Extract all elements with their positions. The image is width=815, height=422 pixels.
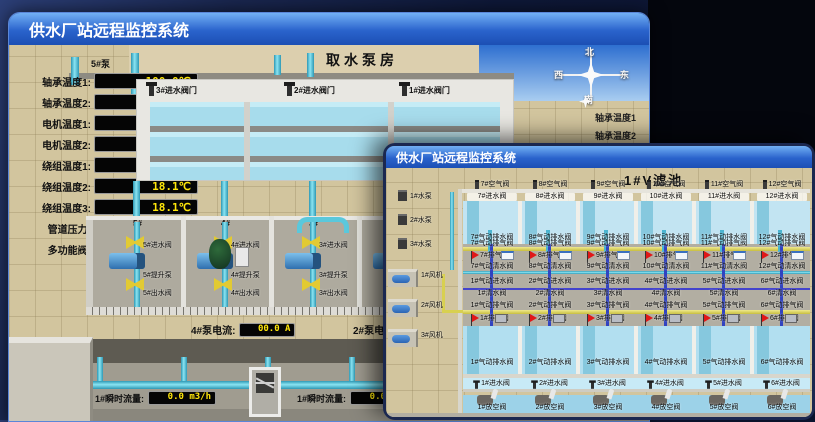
telemetry-label: 管道压力: xyxy=(29,221,94,236)
inlet-valve-label: 1#进水阀门 xyxy=(409,85,450,96)
inlet-gate-valve[interactable]: 2#进水阀门 xyxy=(287,85,335,96)
gate-valve-icon xyxy=(707,382,710,389)
outlet-valve-label: 3#出水阀 xyxy=(319,288,348,298)
empty-valve-label[interactable]: 6#放空阀 xyxy=(753,404,811,412)
blower-label: 2#风机 xyxy=(421,300,443,310)
clean-water-valve-label[interactable]: 6#清水阀 xyxy=(753,290,811,298)
pneumatic-inlet-valve-label[interactable]: 2#气动进水阀 xyxy=(521,278,579,286)
clean-water-valve-label[interactable]: 2#清水阀 xyxy=(521,290,579,298)
pool-pillar xyxy=(244,102,250,180)
clean-water-valve-label[interactable]: 5#清水阀 xyxy=(695,290,753,298)
equipment-box-icon xyxy=(553,314,565,323)
gate-valve-icon xyxy=(475,382,478,389)
titlebar[interactable]: 供水厂站远程监控系统 xyxy=(9,13,649,45)
inlet-valve[interactable]: 5#进水阀 xyxy=(695,380,753,391)
pneumatic-inlet-valve-label[interactable]: 4#气动进水阀 xyxy=(637,278,695,286)
compass-east: 东 xyxy=(620,68,629,81)
side-label-bearing-temp-1: 轴承温度1 xyxy=(595,111,636,124)
telemetry-row: 绕组温度3: 18.1℃ xyxy=(29,199,198,215)
compass-north: 北 xyxy=(585,45,594,58)
pneumatic-drain-valve-label[interactable]: 4#气动排水阀 xyxy=(637,359,695,367)
pneumatic-drain-valve-label[interactable]: 6#气动排水阀 xyxy=(753,359,811,367)
telemetry-label: 电机温度2: xyxy=(29,137,94,152)
flow-label: 1#瞬时流量: xyxy=(297,392,346,405)
panel-screen xyxy=(256,373,274,393)
pump-label: 3#水泵 xyxy=(410,239,432,249)
clean-water-valve-label[interactable]: 4#清水阀 xyxy=(637,290,695,298)
titlebar[interactable]: 供水厂站远程监控系统 xyxy=(386,146,812,168)
filter-cell-column-bottom: 2#气动进水阀 2#清水阀 2#气动排气阀 2#排气阀 2#气动排水阀 2#进水… xyxy=(521,168,579,417)
window-filter-pool: 供水厂站远程监控系统 1#V滤池 xyxy=(383,143,815,420)
pneumatic-vent-valve-label[interactable]: 2#气动排气阀 xyxy=(521,302,579,310)
compass-rose: 北 西 东 南 xyxy=(554,47,632,107)
equipment-box-icon xyxy=(727,314,739,323)
blower[interactable]: 1#风机 xyxy=(388,266,454,288)
blower-label: 1#风机 xyxy=(421,270,443,280)
panel-header: 5#泵 xyxy=(91,57,110,70)
outlet-valve-label: 5#出水阀 xyxy=(143,288,172,298)
filter-wall xyxy=(458,189,462,415)
control-panel-icon xyxy=(235,247,249,267)
pump-label: 2#水泵 xyxy=(410,215,432,225)
vent-flag-icon xyxy=(704,314,711,322)
equipment-box-icon xyxy=(785,314,797,323)
lift-pump-label: 5#提升泵 xyxy=(143,270,172,280)
blower[interactable]: 2#风机 xyxy=(388,296,454,318)
room-wall xyxy=(86,220,93,313)
telemetry-label: 绕组温度1: xyxy=(29,158,94,173)
pneumatic-inlet-valve-label[interactable]: 1#气动进水阀 xyxy=(463,278,521,286)
gate-valve-icon xyxy=(533,382,536,389)
background-panel xyxy=(648,0,815,160)
current-readout: 4#泵电流: 00.0 A xyxy=(191,322,295,337)
compass-star-icon xyxy=(578,62,604,88)
telemetry-label: 轴承温度1: xyxy=(29,74,94,89)
gate-valve-icon xyxy=(149,85,154,96)
led-readout: 00.0 A xyxy=(239,323,295,337)
telemetry-label: 电机温度1: xyxy=(29,116,94,131)
telemetry-label: 绕组温度2: xyxy=(29,179,94,194)
inlet-gate-valve[interactable]: 1#进水阀门 xyxy=(402,85,450,96)
clean-water-valve-label[interactable]: 1#清水阀 xyxy=(463,290,521,298)
inlet-valve-label: 3#进水阀 xyxy=(319,240,348,250)
filter-cell-column-bottom: 6#气动进水阀 6#清水阀 6#气动排气阀 6#排气阀 6#气动排水阀 6#进水… xyxy=(753,168,811,417)
compass-west: 西 xyxy=(554,68,563,81)
access-panel-icon xyxy=(249,367,281,417)
storage-tank-icon xyxy=(209,239,231,269)
equipment-box-icon xyxy=(495,314,507,323)
blower-motor-icon xyxy=(392,275,410,283)
flow-readout: 1#瞬时流量: 0.0 m3/h xyxy=(95,391,216,405)
pump-bay: 5# 5#进水阀 5#提升泵 5#出水阀 xyxy=(93,216,181,313)
window-title: 供水厂站远程监控系统 xyxy=(29,17,189,41)
inlet-valve-label: 5#进水阀 xyxy=(143,240,172,250)
pneumatic-vent-valve-label[interactable]: 4#气动排气阀 xyxy=(637,302,695,310)
telemetry-label: 多功能阀: xyxy=(29,242,94,257)
gate-valve-icon xyxy=(402,85,407,96)
vent-flag-icon xyxy=(530,314,537,322)
filter-cell-column-bottom: 3#气动进水阀 3#清水阀 3#气动排气阀 3#排气阀 3#气动排水阀 3#进水… xyxy=(579,168,637,417)
pump-icon xyxy=(398,238,407,249)
current-label: 4#泵电流: xyxy=(191,322,235,337)
clean-water-valve-label[interactable]: 3#清水阀 xyxy=(579,290,637,298)
inlet-valve[interactable]: 1#进水阀 xyxy=(463,380,521,391)
water-pump[interactable]: 2#水泵 xyxy=(398,214,432,225)
window-title: 供水厂站远程监控系统 xyxy=(396,149,516,166)
outlet-valve-label: 4#出水阀 xyxy=(231,288,260,298)
inlet-valve[interactable]: 2#进水阀 xyxy=(521,380,579,391)
outbuilding xyxy=(9,337,93,421)
pneumatic-drain-valve-label[interactable]: 2#气动排水阀 xyxy=(521,359,579,367)
inlet-gate-valve[interactable]: 3#进水阀门 xyxy=(149,85,197,96)
outlet-main-pipe xyxy=(61,381,391,389)
pump-label: 1#水泵 xyxy=(410,191,432,201)
inlet-valve[interactable]: 3#进水阀 xyxy=(579,380,637,391)
filter-cell-column-bottom: 1#气动进水阀 1#清水阀 1#气动排气阀 1#排气阀 1#气动排水阀 1#进水… xyxy=(463,168,521,417)
water-pump[interactable]: 1#水泵 xyxy=(398,190,432,201)
pneumatic-drain-valve-label[interactable]: 1#气动排水阀 xyxy=(463,359,521,367)
equipment-box-icon xyxy=(669,314,681,323)
vent-flag-icon xyxy=(472,314,479,322)
pipe-post xyxy=(307,53,314,77)
riser-pipe xyxy=(309,181,316,217)
pneumatic-drain-valve-label[interactable]: 5#气动排水阀 xyxy=(695,359,753,367)
pump-header-pipe xyxy=(450,192,454,270)
led-readout: 18.1℃ xyxy=(94,199,198,215)
empty-valve-label[interactable]: 5#放空阀 xyxy=(695,404,753,412)
empty-valve-label[interactable]: 2#放空阀 xyxy=(521,404,579,412)
gate-valve-icon xyxy=(591,382,594,389)
pool-channel xyxy=(150,102,500,126)
equipment-box-icon xyxy=(611,314,623,323)
inlet-valve[interactable]: 4#进水阀 xyxy=(637,380,695,391)
blower-motor-icon xyxy=(392,305,410,313)
led-readout: 0.0 m3/h xyxy=(148,391,216,405)
scene-title: 取水泵房 xyxy=(326,50,398,70)
filter-cell-column-bottom: 5#气动进水阀 5#清水阀 5#气动排气阀 5#排气阀 5#气动排水阀 5#进水… xyxy=(695,168,753,417)
inlet-valve-label: 2#进水阀门 xyxy=(294,85,335,96)
gate-valve-icon xyxy=(649,382,652,389)
filter-scene: 1#V滤池 xyxy=(386,168,812,417)
vent-flag-icon xyxy=(646,314,653,322)
lift-pump-label: 3#提升泵 xyxy=(319,270,348,280)
vent-flag-icon xyxy=(588,314,595,322)
lift-pump-icon[interactable] xyxy=(285,253,321,269)
pump-icon xyxy=(398,190,407,201)
vent-flag-icon xyxy=(762,314,769,322)
gate-valve-icon xyxy=(765,382,768,389)
pneumatic-drain-valve-label[interactable]: 3#气动排水阀 xyxy=(579,359,637,367)
riser-pipe xyxy=(133,181,140,217)
blower-motor-icon xyxy=(392,335,410,343)
riser-pipe xyxy=(221,181,228,217)
inlet-valve[interactable]: 6#进水阀 xyxy=(753,380,811,391)
filter-cell-column-bottom: 4#气动进水阀 4#清水阀 4#气动排气阀 4#排气阀 4#气动排水阀 4#进水… xyxy=(637,168,695,417)
water-pump[interactable]: 3#水泵 xyxy=(398,238,432,249)
pneumatic-inlet-valve-label[interactable]: 6#气动进水阀 xyxy=(753,278,811,286)
empty-valve-label[interactable]: 3#放空阀 xyxy=(579,404,637,412)
telemetry-label: 绕组温度3: xyxy=(29,200,94,215)
pump-house-wall xyxy=(129,45,479,75)
pneumatic-inlet-valve-label[interactable]: 3#气动进水阀 xyxy=(579,278,637,286)
gate-valve-icon xyxy=(287,85,292,96)
side-label-bearing-temp-2: 轴承温度2 xyxy=(595,129,636,142)
blower-label: 3#风机 xyxy=(421,330,443,340)
empty-valve-label[interactable]: 4#放空阀 xyxy=(637,404,695,412)
pneumatic-vent-valve-label[interactable]: 1#气动排气阀 xyxy=(463,302,521,310)
inlet-valve-label: 3#进水阀门 xyxy=(156,85,197,96)
pneumatic-vent-valve-label[interactable]: 3#气动排气阀 xyxy=(579,302,637,310)
blower[interactable]: 3#风机 xyxy=(388,326,454,348)
pneumatic-vent-valve-label[interactable]: 5#气动排气阀 xyxy=(695,302,753,310)
pump-icon xyxy=(398,214,407,225)
u-pipe xyxy=(297,217,349,233)
pneumatic-inlet-valve-label[interactable]: 5#气动进水阀 xyxy=(695,278,753,286)
pipe-post xyxy=(274,55,281,75)
lift-pump-label: 4#提升泵 xyxy=(231,270,260,280)
lift-pump-icon[interactable] xyxy=(109,253,145,269)
pneumatic-vent-valve-label[interactable]: 6#气动排气阀 xyxy=(753,302,811,310)
flow-label: 1#瞬时流量: xyxy=(95,392,144,405)
telemetry-label: 轴承温度2: xyxy=(29,95,94,110)
empty-valve-label[interactable]: 1#放空阀 xyxy=(463,404,521,412)
